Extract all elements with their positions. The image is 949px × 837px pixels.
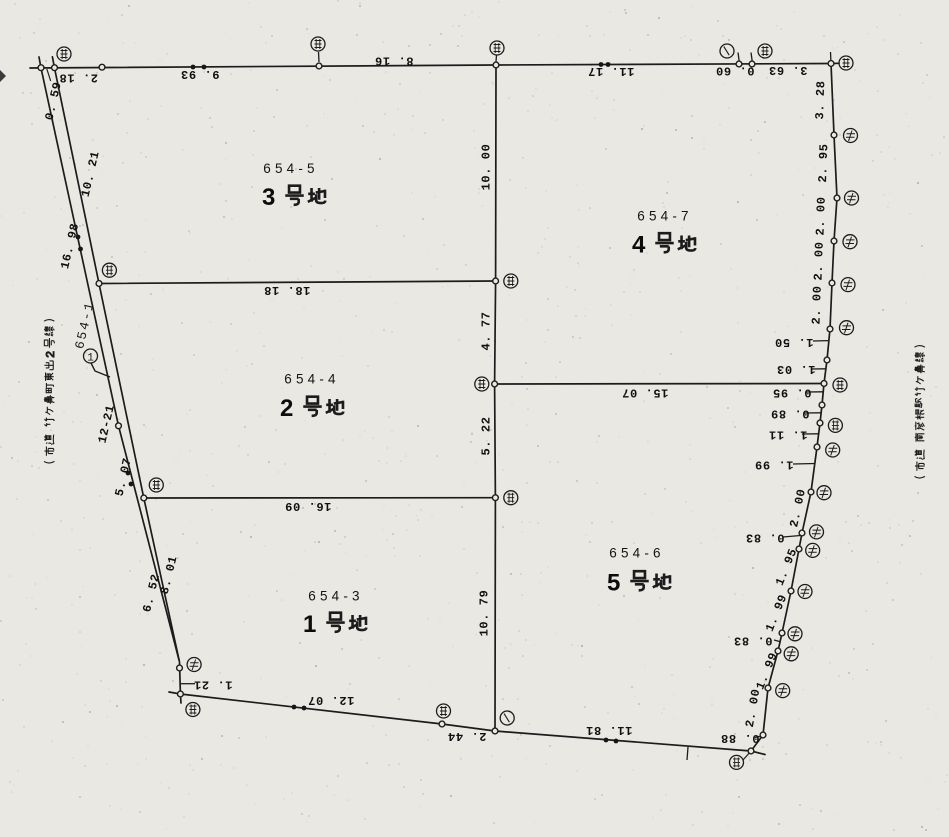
svg-text:15. 07: 15. 07: [622, 385, 669, 399]
svg-text:11. 81: 11. 81: [586, 723, 633, 737]
svg-text:1. 11: 1. 11: [768, 427, 807, 441]
svg-text:2. 44: 2. 44: [447, 729, 486, 743]
svg-text:12. 07: 12. 07: [308, 693, 355, 707]
svg-text:18. 18: 18. 18: [264, 283, 311, 297]
svg-text:2: 2: [44, 351, 58, 358]
svg-text:2. 00: 2. 00: [813, 196, 828, 235]
svg-text:2. 00: 2. 00: [809, 285, 824, 324]
svg-text:1. 03: 1. 03: [776, 362, 815, 376]
svg-text:654-5: 654-5: [263, 161, 319, 176]
svg-text:5: 5: [607, 570, 620, 597]
svg-text:16. 09: 16. 09: [285, 499, 332, 513]
svg-text:1. 99: 1. 99: [754, 457, 793, 471]
svg-text:654-3: 654-3: [308, 589, 364, 604]
svg-text:1. 21: 1. 21: [193, 677, 232, 691]
svg-text:1: 1: [303, 611, 316, 638]
svg-text:2: 2: [280, 395, 293, 422]
svg-text:4: 4: [632, 232, 646, 259]
svg-text:1. 50: 1. 50: [774, 335, 813, 349]
svg-text:0. 88: 0. 88: [720, 731, 759, 745]
svg-text:2. 95: 2. 95: [816, 143, 831, 182]
svg-text:654-4: 654-4: [284, 372, 340, 387]
svg-text:9. 93: 9. 93: [180, 67, 219, 81]
svg-text:3. 28: 3. 28: [813, 80, 828, 119]
svg-text:654-7: 654-7: [637, 209, 693, 224]
svg-text:654-6: 654-6: [609, 546, 665, 561]
svg-text:3: 3: [262, 184, 275, 211]
svg-text:4. 77: 4. 77: [480, 311, 494, 350]
svg-text:0. 89: 0. 89: [770, 406, 809, 420]
svg-text:0. 95: 0. 95: [772, 385, 811, 399]
svg-text:10. 79: 10. 79: [478, 590, 492, 637]
svg-text:3. 63: 3. 63: [768, 63, 807, 77]
svg-text:2. 18: 2. 18: [59, 70, 98, 84]
svg-text:0. 60: 0. 60: [715, 63, 754, 77]
svg-text:10. 00: 10. 00: [480, 144, 494, 191]
svg-text:0. 83: 0. 83: [733, 633, 772, 647]
svg-text:0. 83: 0. 83: [745, 530, 784, 544]
svg-text:2. 00: 2. 00: [811, 241, 826, 280]
svg-text:11. 17: 11. 17: [588, 64, 635, 78]
svg-text:1: 1: [87, 353, 94, 365]
svg-text:8. 16: 8. 16: [374, 53, 413, 67]
svg-text:5. 22: 5. 22: [480, 416, 494, 455]
